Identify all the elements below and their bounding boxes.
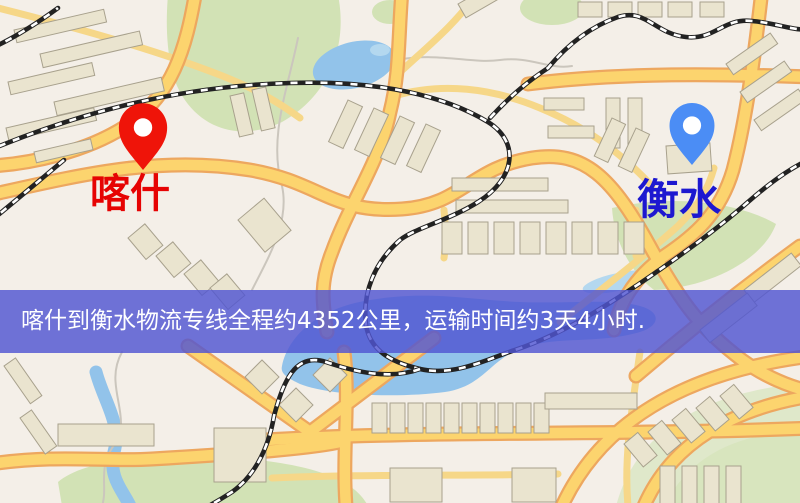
origin-city-label: 喀什 [90,174,170,214]
route-info-banner: 喀什到衡水物流专线全程约4352公里，运输时间约3天4小时. [0,290,800,353]
map-art [0,0,800,503]
destination-city-label: 衡水 [637,179,721,221]
map-canvas[interactable] [0,0,800,503]
